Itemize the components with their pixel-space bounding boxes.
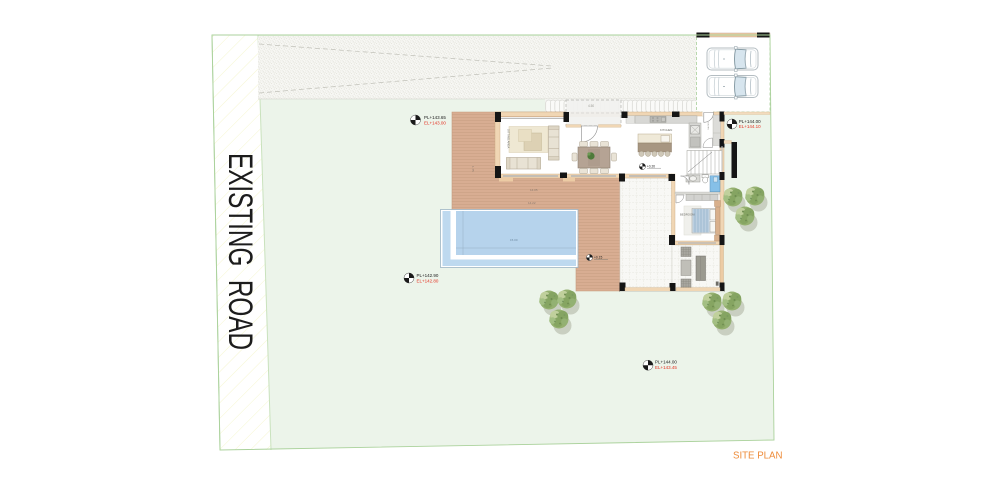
- svg-text:KITCHEN: KITCHEN: [660, 128, 672, 132]
- svg-text:14.22: 14.22: [528, 201, 536, 205]
- svg-text:+0.20: +0.20: [647, 165, 656, 169]
- svg-text:PL+143.65: PL+143.65: [424, 115, 446, 120]
- svg-text:1.75: 1.75: [471, 166, 475, 172]
- svg-text:PL+144.00: PL+144.00: [655, 360, 677, 365]
- svg-text:EL+142.80: EL+142.80: [417, 279, 439, 284]
- svg-text:SITE PLAN: SITE PLAN: [733, 451, 783, 462]
- svg-text:15.00: 15.00: [510, 238, 518, 242]
- svg-text:ENTRY: ENTRY: [707, 123, 709, 131]
- svg-text:EL+143.45: EL+143.45: [655, 365, 677, 370]
- svg-text:4.50: 4.50: [588, 104, 594, 108]
- svg-text:SITTING AREA: SITTING AREA: [507, 129, 511, 148]
- svg-text:BEDROOM: BEDROOM: [680, 213, 695, 217]
- svg-text:EL+143.00: EL+143.00: [424, 120, 446, 125]
- svg-text:+0.15: +0.15: [594, 256, 603, 260]
- svg-text:PL+142.90: PL+142.90: [417, 273, 439, 278]
- svg-text:EXISTING ROAD: EXISTING ROAD: [221, 153, 259, 350]
- svg-text:14.05: 14.05: [530, 188, 538, 192]
- svg-text:EL+144.10: EL+144.10: [739, 124, 761, 129]
